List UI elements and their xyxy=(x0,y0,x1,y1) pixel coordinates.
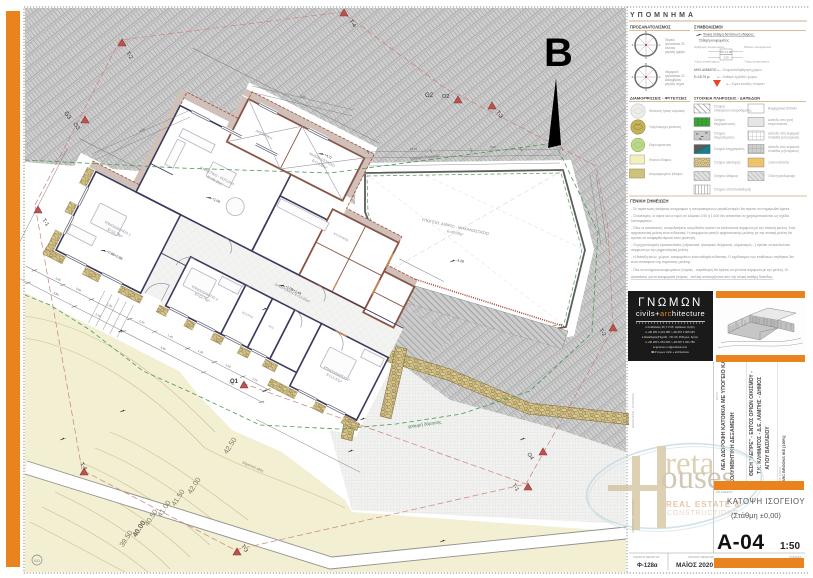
svg-text:☎ Γνώμων civils + architecture: ☎ Γνώμων civils + architecture xyxy=(651,350,689,354)
svg-text:θερμομόνωσης: θερμομόνωσης xyxy=(714,122,736,126)
svg-text:είναι αντικείμενο της παρούσας: είναι αντικείμενο της παρούσας μελέτης. xyxy=(631,260,691,264)
svg-text:Βιομηχανικό δάπεδο: Βιομηχανικό δάπεδο xyxy=(768,107,797,111)
svg-text:Φύτευση ήπιας κλίμακας: Φύτευση ήπιας κλίμακας xyxy=(649,109,685,113)
svg-text:ouses: ouses xyxy=(661,460,734,496)
svg-text:μεγάλη ημέρα: μεγάλη ημέρα xyxy=(665,50,685,54)
svg-text:Αρίθμηση κουφώματος: Αρίθμηση κουφώματος xyxy=(694,45,725,49)
svg-text:Στάθμη κουφώματος: Στάθμη κουφώματος xyxy=(699,39,729,43)
svg-text:G2: G2 xyxy=(425,93,434,99)
svg-text:5,90: 5,90 xyxy=(490,145,496,149)
svg-text:ΠΡ-1 0,90: ΠΡ-1 0,90 xyxy=(720,50,732,54)
svg-text:O1: O1 xyxy=(230,379,239,385)
svg-text:Ύψος κουφώματος: Ύψος κουφώματος xyxy=(694,60,720,64)
svg-text:οπλισμένου σκυροδέματος: οπλισμένου σκυροδέματος xyxy=(714,109,752,113)
svg-text:Ξύλινο δάπεδο: Ξύλινο δάπεδο xyxy=(768,161,789,165)
svg-text:Β: Β xyxy=(645,62,647,66)
svg-text:B: B xyxy=(544,31,573,75)
svg-text:- Σε περίπτωση ασάφειας αναγρα: - Σε περίπτωση ασάφειας αναγραφών ή ανευ… xyxy=(631,207,790,211)
svg-text:μεγάλη νύχτα: μεγάλη νύχτα xyxy=(665,82,684,86)
svg-text:ΣΥΜΒΟΛΙΣΜΟΙ: ΣΥΜΒΟΛΙΣΜΟΙ xyxy=(694,25,723,30)
svg-text:10,97: 10,97 xyxy=(410,147,417,151)
svg-text:ΠΡΟΣΑΝΑΤΟΛΙΣΜΟΣ: ΠΡΟΣΑΝΑΤΟΛΙΣΜΟΣ xyxy=(630,25,671,30)
svg-text:- Οι κατόψεις, οι όψεις και οι: - Οι κατόψεις, οι όψεις και οι τομές σε … xyxy=(631,214,789,218)
svg-text:Α: Α xyxy=(659,43,661,47)
svg-text:πλακίδια (εσωτερικού): πλακίδια (εσωτερικού) xyxy=(768,136,799,140)
svg-text:Στοιχείο επιχρίσματος: Στοιχείο επιχρίσματος xyxy=(714,147,745,151)
svg-text:✉ gnomon.c.a@outlook.com: ✉ gnomon.c.a@outlook.com xyxy=(653,345,688,349)
svg-text:Τελική στάθμη δαπέδου ή εδάφου: Τελική στάθμη δαπέδου ή εδάφους xyxy=(703,33,754,37)
svg-text:Β: Β xyxy=(645,30,647,34)
svg-text:Ε=18,75 μ²: Ε=18,75 μ² xyxy=(694,75,710,79)
svg-text:Διαμορφωμένο έδαφος: Διαμορφωμένο έδαφος xyxy=(649,172,683,176)
svg-text:Ν: Ν xyxy=(645,56,647,60)
svg-text:Α: Α xyxy=(659,75,661,79)
svg-text:◂— Καθαρό εμβαδόν χώρου: ◂— Καθαρό εμβαδόν χώρου xyxy=(717,75,757,79)
svg-text:ΔΙΑΜΟΡΦΩΣΕΙΣ - ΦΥΤΕΥΣΕΙΣ: ΔΙΑΜΟΡΦΩΣΕΙΣ - ΦΥΤΕΥΣΕΙΣ xyxy=(630,96,687,101)
svg-text:Διαστάσεις για τα κουφώματα (π: Διαστάσεις για τα κουφώματα (πόρτες - πο… xyxy=(631,275,773,279)
svg-text:◂— Ονομασία/Αρίθμηση χώρου: ◂— Ονομασία/Αρίθμηση χώρου xyxy=(717,68,762,72)
svg-text:ΓΕΝΙΚΗ ΣΗΜΕΙΩΣΗ: ΓΕΝΙΚΗ ΣΗΜΕΙΩΣΗ xyxy=(630,199,669,204)
svg-text:αρχιτεκτονική μελέτη είναι ενδ: αρχιτεκτονική μελέτη είναι ενδεικτικά. Η… xyxy=(631,231,792,235)
svg-text:ΜΗΧ.ΔΩΜΑΤΙΟ: ΜΗΧ.ΔΩΜΑΤΙΟ xyxy=(694,68,717,72)
svg-text:σκυροδέματος: σκυροδέματος xyxy=(714,136,735,140)
svg-text:2,20: 2,20 xyxy=(723,56,729,60)
svg-text:- Η διάταξη ίσιων, χώρων, κουφ: - Η διάταξη ίσιων, χώρων, κουφωμάτων είν… xyxy=(631,255,795,259)
svg-text:- Οι μηχανολογικές εγκαταστάσε: - Οι μηχανολογικές εγκαταστάσεις (υδραυλ… xyxy=(631,243,790,247)
svg-text:CONSTRUCTIONS: CONSTRUCTIONS xyxy=(667,510,738,517)
svg-text:Ύψος κουφώματος: Ύψος κουφώματος xyxy=(744,60,770,64)
svg-text:Δ: Δ xyxy=(632,75,634,79)
svg-text:ΘΕΣΗ: ΘΕΣΗ xyxy=(747,380,751,388)
svg-text:ΣΤΟΙΧΕΙΑ ΠΛΗΡΩΣΕΙΣ - ΔΑΠΕΔΩΝ: ΣΤΟΙΧΕΙΑ ΠΛΗΡΩΣΕΙΣ - ΔΑΠΕΔΩΝ xyxy=(694,96,760,101)
svg-text:Θαμνοφύτευση: Θαμνοφύτευση xyxy=(649,143,671,147)
svg-text:Στοιχείο λιθοδομής: Στοιχείο λιθοδομής xyxy=(714,161,741,165)
svg-text:Δ: Δ xyxy=(632,43,634,47)
svg-text:Φυσικό έδαφος: Φυσικό έδαφος xyxy=(649,158,672,162)
svg-text:- Όλα τα ανοίγματα κουφωμάτων: - Όλα τα ανοίγματα κουφωμάτων (πόρτες - … xyxy=(631,268,788,272)
svg-text:ΘΕΩΡΗΣΕΙΣ - ΕΓΚΡΙΣΕΙΣ: ΘΕΩΡΗΣΕΙΣ - ΕΓΚΡΙΣΕΙΣ xyxy=(631,393,635,428)
svg-text:τσιμεντοκονία: τσιμεντοκονία xyxy=(768,122,787,126)
svg-text:Πλάτος κουφώματος: Πλάτος κουφώματος xyxy=(744,45,772,49)
svg-text:σύμφωνα με την μηχανολογική με: σύμφωνα με την μηχανολογική μελέτη. xyxy=(631,248,689,252)
svg-text:λεπτομερειών.: λεπτομερειών. xyxy=(631,219,653,223)
svg-text:● +30 283 1 051 035 / +30 697: ● +30 283 1 051 035 / +30 697 4 034 786 xyxy=(645,340,695,344)
svg-text:Υψηλόκορμη φύτευση: Υψηλόκορμη φύτευση xyxy=(649,125,681,129)
svg-text:● Ελευθερίας/Πηγαΐδ., 741 00,: ● Ελευθερίας/Πηγαΐδ., 741 00, Ρέθυμνο, Κ… xyxy=(642,335,699,339)
svg-text:Στοιχείο εδάφους: Στοιχείο εδάφους xyxy=(714,174,739,178)
svg-text:● +30 281 0 223 485 / +30 697: ● +30 281 0 223 485 / +30 697 2 925 045 xyxy=(645,330,695,334)
svg-text:Στοιχείο οπτοπλινθοδομής: Στοιχείο οπτοπλινθοδομής xyxy=(714,188,752,192)
svg-text:O2: O2 xyxy=(442,94,449,100)
svg-text:K41: K41 xyxy=(34,559,40,563)
svg-text:πρέπει να αναφερθεί άμεσα στον: πρέπει να αναφερθεί άμεσα στον μελετητή. xyxy=(631,236,696,240)
svg-text:ΥΠΟΜΝΗΜΑ: ΥΠΟΜΝΗΜΑ xyxy=(630,12,696,19)
svg-text:πλακίδια (εξωτερικού): πλακίδια (εξωτερικού) xyxy=(768,149,799,153)
svg-text:Ν: Ν xyxy=(645,88,647,92)
svg-text:◂— Κύρια είσοδος «πόρτα»: ◂— Κύρια είσοδος «πόρτα» xyxy=(726,82,765,86)
svg-text:- Όλες οι κατασκευές, σκυροδετ: - Όλες οι κατασκευές, σκυροδετήσεις και … xyxy=(631,226,796,230)
svg-text:ΕΡΓΟ: ΕΡΓΟ xyxy=(715,391,719,400)
svg-text:Ξύλινη ψευδοροφή: Ξύλινη ψευδοροφή xyxy=(768,174,795,178)
